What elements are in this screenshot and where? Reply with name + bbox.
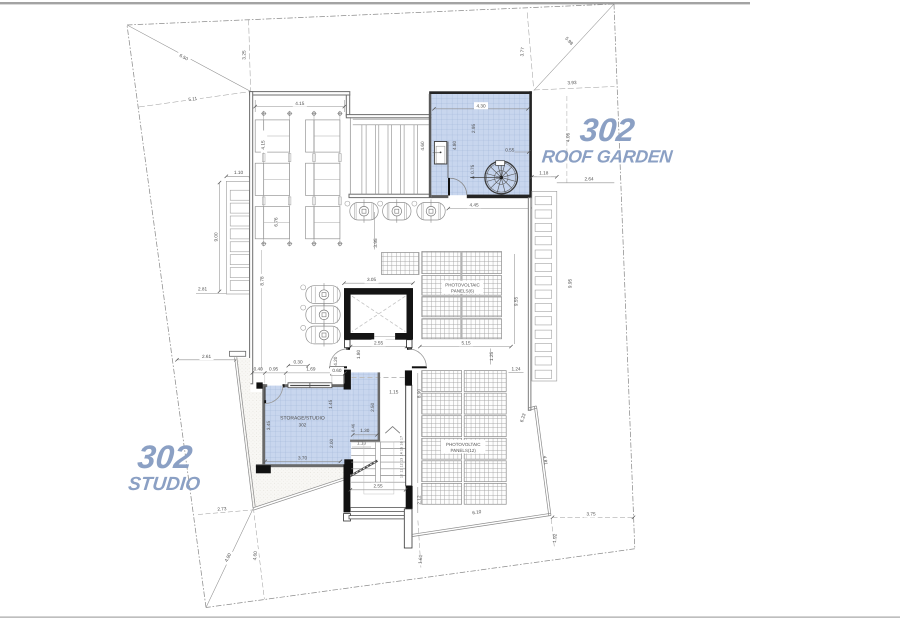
svg-text:1.10: 1.10 <box>357 440 367 445</box>
svg-text:2.64: 2.64 <box>584 177 594 182</box>
svg-text:0.95: 0.95 <box>269 367 279 372</box>
svg-text:4.60: 4.60 <box>420 141 425 151</box>
svg-text:8.90: 8.90 <box>416 389 421 399</box>
svg-text:4.30: 4.30 <box>476 103 486 108</box>
svg-text:1.18: 1.18 <box>539 171 549 176</box>
svg-text:3.70: 3.70 <box>298 455 308 460</box>
svg-text:302: 302 <box>299 423 307 428</box>
svg-text:1.92: 1.92 <box>552 533 558 543</box>
svg-text:0.60: 0.60 <box>332 368 342 373</box>
svg-text:2.00: 2.00 <box>329 438 334 448</box>
svg-text:302: 302 <box>578 112 636 148</box>
svg-text:3.75: 3.75 <box>586 511 596 516</box>
svg-text:8.78: 8.78 <box>260 276 265 286</box>
svg-text:2.81: 2.81 <box>198 287 208 292</box>
svg-text:1.69: 1.69 <box>306 367 316 372</box>
svg-text:ROOF GARDEN: ROOF GARDEN <box>541 147 675 167</box>
svg-text:4.06: 4.06 <box>566 133 571 143</box>
svg-text:1.24: 1.24 <box>511 367 521 372</box>
svg-text:0.40: 0.40 <box>254 367 264 372</box>
svg-text:1.30: 1.30 <box>360 428 370 433</box>
svg-text:4.15: 4.15 <box>295 101 305 106</box>
svg-text:STUDIO: STUDIO <box>127 474 201 495</box>
svg-text:1.61: 1.61 <box>418 554 424 564</box>
svg-text:9.55: 9.55 <box>513 297 518 307</box>
svg-text:PHOTOVOLTAIC: PHOTOVOLTAIC <box>445 282 480 287</box>
svg-text:2.55: 2.55 <box>373 484 383 489</box>
svg-text:0.75: 0.75 <box>470 164 475 174</box>
svg-text:2.61: 2.61 <box>202 354 212 359</box>
svg-text:1.80: 1.80 <box>356 350 361 360</box>
svg-text:2.55: 2.55 <box>374 341 384 346</box>
svg-text:1.15: 1.15 <box>389 389 399 394</box>
svg-text:2.95: 2.95 <box>471 124 476 134</box>
svg-text:PHOTOVOLTAIC: PHOTOVOLTAIC <box>446 442 481 447</box>
svg-text:3.93: 3.93 <box>567 80 577 85</box>
svg-text:3.05: 3.05 <box>367 277 377 282</box>
svg-text:6.76: 6.76 <box>274 217 279 227</box>
svg-text:3.45: 3.45 <box>266 421 271 431</box>
svg-text:0.30: 0.30 <box>293 359 303 364</box>
svg-text:302: 302 <box>136 439 194 475</box>
svg-text:9.00: 9.00 <box>214 232 219 242</box>
svg-text:2.73: 2.73 <box>217 506 227 512</box>
svg-text:3.77: 3.77 <box>519 47 525 57</box>
svg-text:1.25: 1.25 <box>489 352 494 362</box>
svg-text:PANELS(6): PANELS(6) <box>451 288 474 293</box>
svg-text:0.55: 0.55 <box>505 148 515 153</box>
svg-text:PANELS(12): PANELS(12) <box>450 448 476 453</box>
svg-text:10 11 12 13 14 15 16 17: 10 11 12 13 14 15 16 17 <box>399 436 403 478</box>
svg-text:4.15: 4.15 <box>260 140 265 150</box>
svg-text:4.45: 4.45 <box>469 202 479 207</box>
svg-text:5.15: 5.15 <box>461 341 471 346</box>
svg-text:1.10: 1.10 <box>234 170 244 175</box>
svg-text:2.50: 2.50 <box>370 402 375 412</box>
svg-text:3.95: 3.95 <box>373 238 378 248</box>
svg-text:4.80: 4.80 <box>452 141 457 151</box>
svg-text:1.45: 1.45 <box>328 399 333 409</box>
svg-text:2.12: 2.12 <box>416 495 421 505</box>
svg-text:9.95: 9.95 <box>568 279 573 289</box>
svg-text:4.20: 4.20 <box>333 356 338 366</box>
svg-text:STORAGE/STUDIO: STORAGE/STUDIO <box>280 416 325 422</box>
svg-text:3.25: 3.25 <box>242 50 247 60</box>
svg-text:0.46: 0.46 <box>350 423 355 432</box>
